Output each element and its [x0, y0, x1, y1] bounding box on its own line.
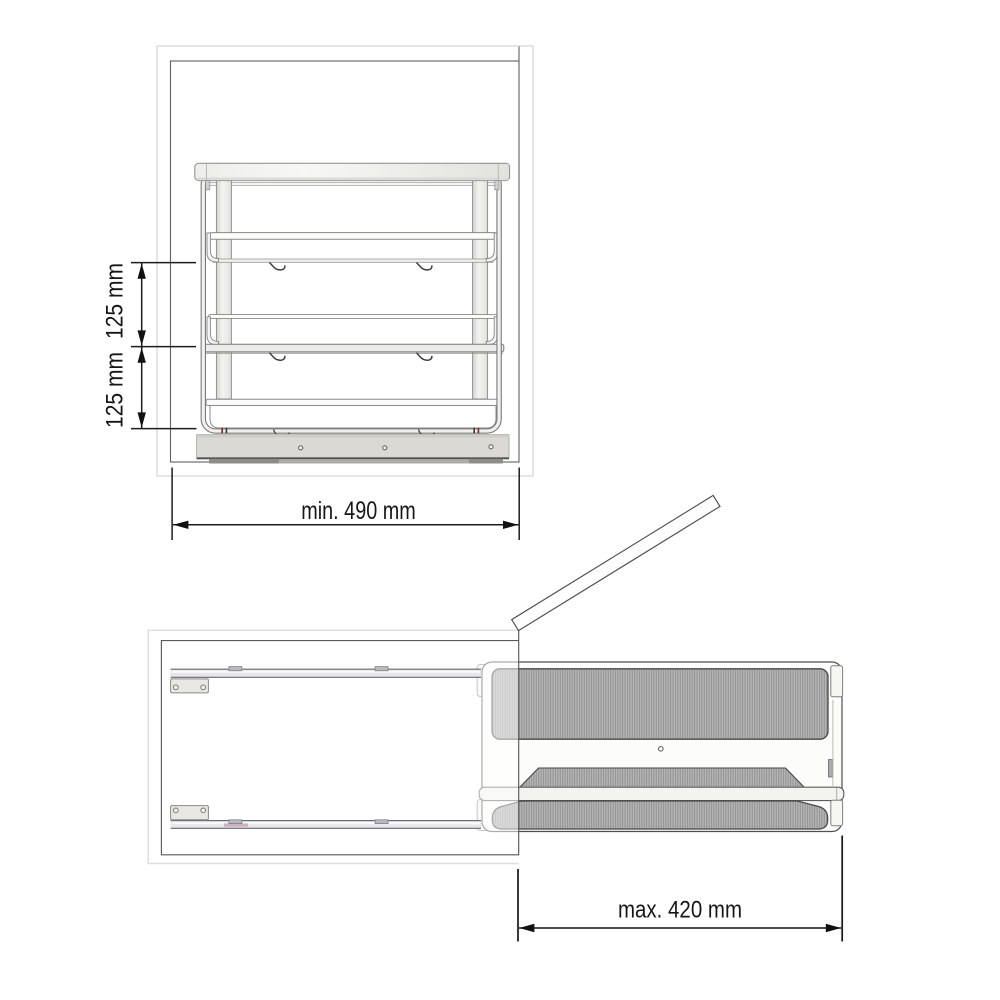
svg-text:125 mm: 125 mm [102, 352, 129, 428]
svg-text:min. 490 mm: min. 490 mm [301, 498, 416, 525]
svg-text:125 mm: 125 mm [102, 263, 129, 339]
svg-text:max. 420 mm: max. 420 mm [618, 896, 742, 923]
